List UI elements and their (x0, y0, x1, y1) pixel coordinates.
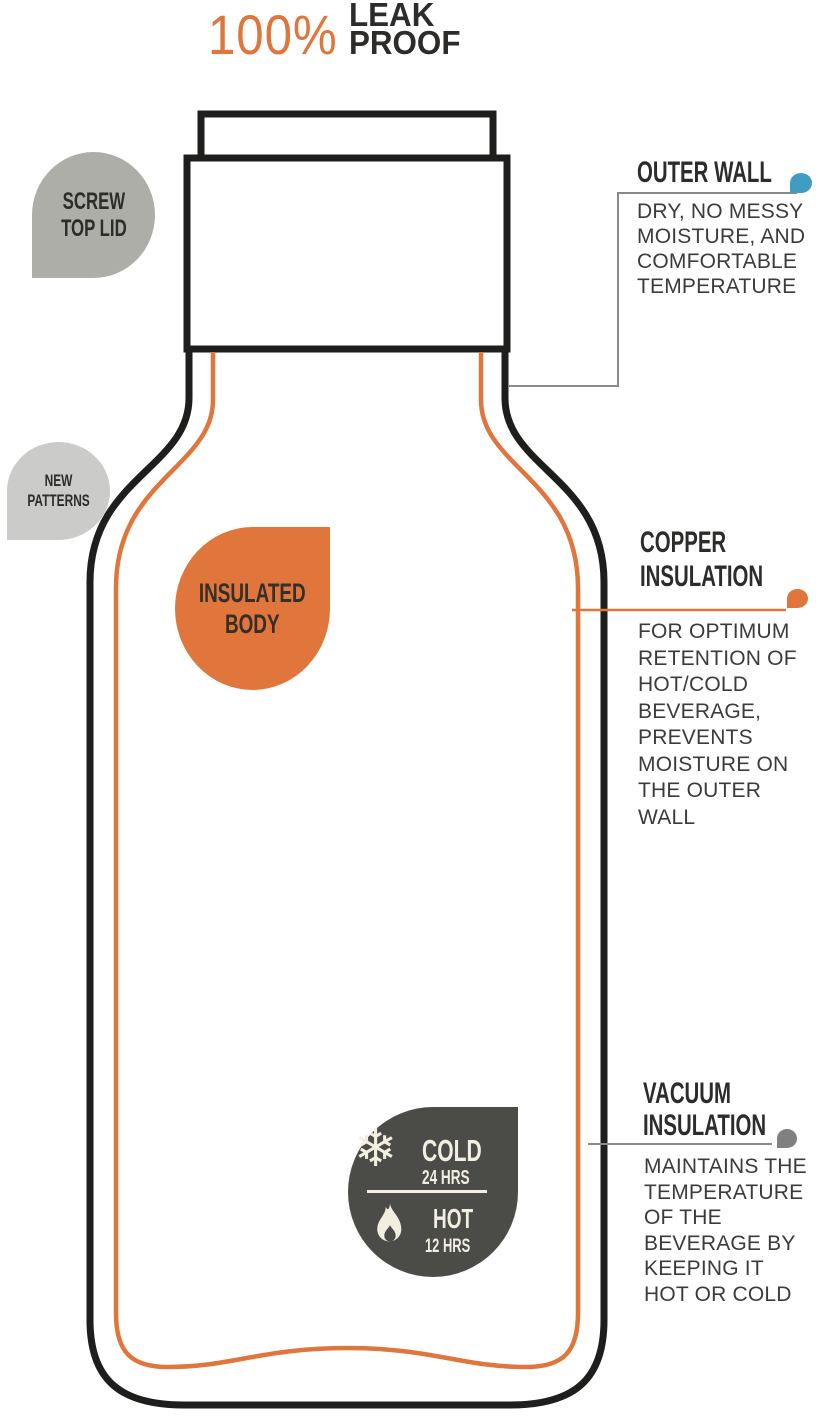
badge-new-patterns-label: NEWPATTERNS (27, 471, 89, 511)
badge-screw-top-lid: SCREWTOP LID (32, 152, 155, 278)
badge-insulated-body: INSULATEDBODY (175, 527, 330, 690)
leak-proof-bottle-infographic: 100% LEAK PROOF SCREWTOP LID NEWPATTERNS… (0, 0, 826, 1418)
badge-screw-line2: TOP LID (61, 215, 127, 242)
badge-patterns-line2: PATTERNS (27, 491, 89, 510)
flame-icon (373, 1202, 407, 1254)
snowflake-icon: ❄ (354, 1123, 398, 1175)
outer-wall-heading: OUTER WALL (637, 158, 772, 188)
hot-label: HOT (433, 1203, 473, 1235)
bottle-lid (187, 158, 507, 349)
title-leak-proof: LEAK PROOF (349, 1, 460, 57)
outer-wall-description: DRY, NO MESSY MOISTURE, AND COMFORTABLE … (637, 199, 805, 299)
copper-insulation-teardrop-dot (787, 589, 808, 608)
badge-screw-top-lid-label: SCREWTOP LID (61, 188, 127, 242)
badge-insulated-line1: INSULATED (199, 578, 306, 608)
vacuum-insulation-description: MAINTAINS THE TEMPERATURE OF THE BEVERAG… (644, 1154, 807, 1307)
temperature-divider-line (367, 1190, 487, 1193)
cold-duration: 24 HRS (422, 1167, 470, 1190)
vacuum-insulation-heading: VACUUM INSULATION (643, 1078, 766, 1142)
cold-label: COLD (422, 1133, 482, 1169)
badge-new-patterns: NEWPATTERNS (7, 442, 110, 540)
badge-screw-line1: SCREW (62, 188, 125, 215)
bottle-outer-wall-outline (90, 349, 604, 1405)
hot-duration: 12 HRS (425, 1236, 470, 1258)
copper-insulation-description: FOR OPTIMUM RETENTION OF HOT/COLD BEVERA… (638, 619, 797, 831)
badge-patterns-line1: NEW (45, 471, 73, 490)
flame-icon-svg (373, 1202, 407, 1254)
badge-temperature-retention: ❄ COLD 24 HRS HOT 12 HRS (348, 1107, 518, 1277)
outer-wall-teardrop-dot (790, 173, 812, 193)
copper-insulation-heading: COPPER INSULATION (640, 526, 763, 594)
copper-insulation-heading-block: COPPER INSULATION (640, 526, 821, 594)
badge-insulated-body-label: INSULATEDBODY (199, 578, 306, 640)
title-percent: 100% (208, 2, 338, 67)
vacuum-insulation-heading-block: VACUUM INSULATION (643, 1078, 824, 1142)
bottle-cap-top (201, 114, 493, 160)
title-proof-line: PROOF (349, 29, 460, 57)
vacuum-insulation-teardrop-dot (777, 1129, 797, 1148)
badge-insulated-line2: BODY (225, 609, 280, 639)
